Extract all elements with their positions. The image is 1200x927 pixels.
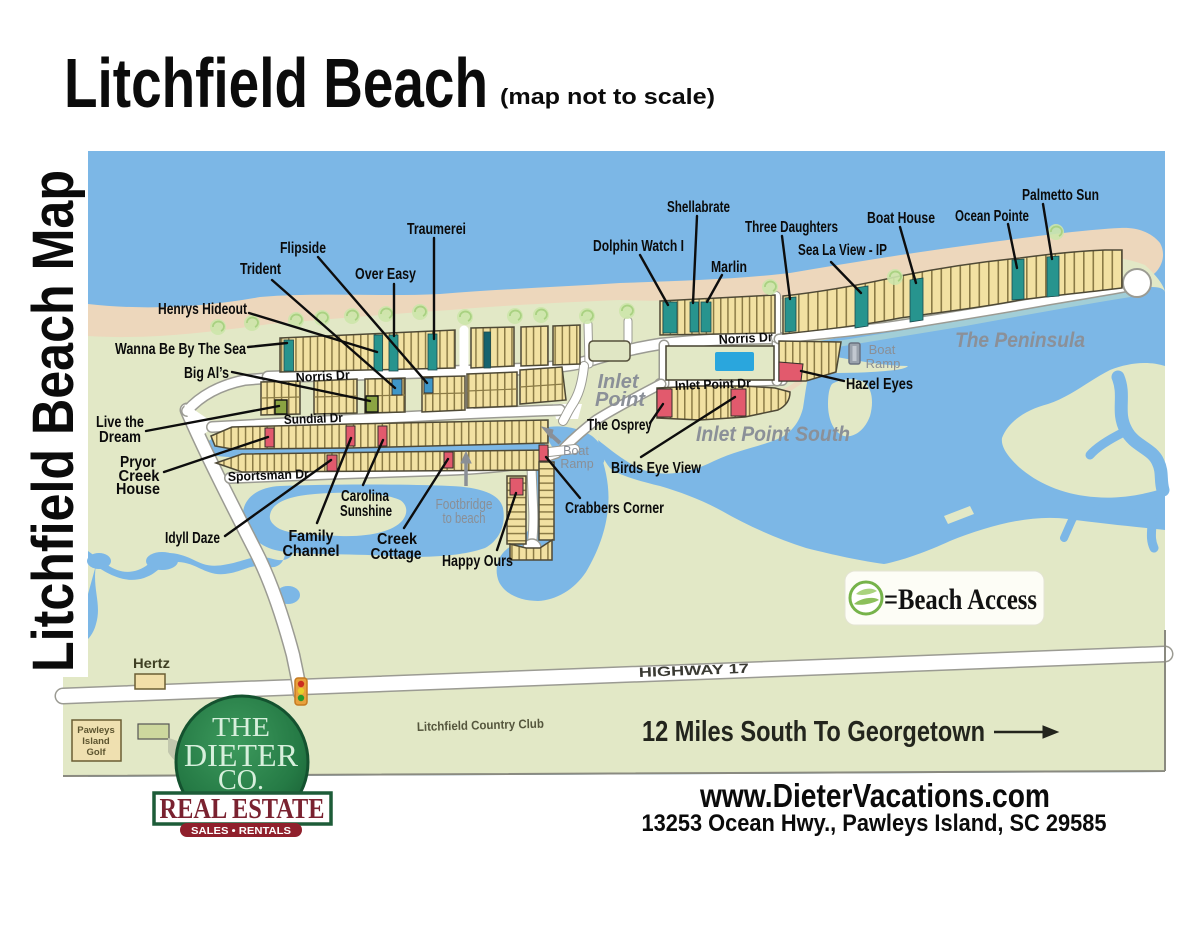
svg-text:Sundial Dr: Sundial Dr bbox=[284, 410, 343, 427]
svg-text:Trident: Trident bbox=[240, 261, 281, 278]
svg-text:13253 Ocean Hwy., Pawleys Isla: 13253 Ocean Hwy., Pawleys Island, SC 295… bbox=[642, 810, 1107, 837]
svg-text:Pawleys: Pawleys bbox=[77, 725, 115, 736]
svg-text:to beach: to beach bbox=[443, 511, 486, 527]
svg-text:Channel: Channel bbox=[283, 543, 340, 560]
svg-text:The Peninsula: The Peninsula bbox=[955, 329, 1085, 352]
svg-text:Hertz: Hertz bbox=[133, 656, 170, 671]
svg-text:Dream: Dream bbox=[99, 429, 141, 446]
svg-text:Crabbers Corner: Crabbers Corner bbox=[565, 500, 664, 517]
svg-text:Point: Point bbox=[595, 389, 646, 411]
svg-text:Boat: Boat bbox=[563, 444, 589, 458]
svg-text:=Beach Access: =Beach Access bbox=[884, 583, 1037, 616]
svg-text:Marlin: Marlin bbox=[711, 259, 747, 276]
svg-text:Cottage: Cottage bbox=[371, 546, 422, 563]
svg-text:Sea La View - IP: Sea La View - IP bbox=[798, 242, 887, 259]
svg-text:Sportsman Dr: Sportsman Dr bbox=[228, 466, 309, 484]
svg-text:Birds Eye View: Birds Eye View bbox=[611, 460, 702, 477]
svg-text:Happy Ours: Happy Ours bbox=[442, 553, 513, 570]
svg-text:SALES • RENTALS: SALES • RENTALS bbox=[191, 825, 291, 837]
svg-text:Sunshine: Sunshine bbox=[340, 503, 392, 520]
svg-text:Ocean Pointe: Ocean Pointe bbox=[955, 208, 1029, 225]
svg-text:www.DieterVacations.com: www.DieterVacations.com bbox=[699, 777, 1050, 814]
svg-text:Hazel Eyes: Hazel Eyes bbox=[846, 376, 913, 393]
svg-text:Shellabrate: Shellabrate bbox=[667, 199, 730, 216]
svg-text:Flipside: Flipside bbox=[280, 240, 326, 257]
svg-text:The Osprey: The Osprey bbox=[587, 417, 652, 434]
svg-text:Ramp: Ramp bbox=[866, 356, 901, 371]
svg-text:Litchfield Beach: Litchfield Beach bbox=[64, 44, 488, 122]
svg-text:House: House bbox=[116, 481, 160, 498]
svg-text:CO.: CO. bbox=[218, 764, 264, 796]
svg-text:Island: Island bbox=[82, 736, 110, 747]
svg-text:Inlet Point Dr: Inlet Point Dr bbox=[675, 375, 751, 393]
svg-text:REAL ESTATE: REAL ESTATE bbox=[160, 794, 325, 825]
svg-text:Dolphin Watch I: Dolphin Watch I bbox=[593, 238, 684, 255]
svg-text:Norris Dr: Norris Dr bbox=[718, 329, 773, 347]
svg-text:Big Al’s: Big Al’s bbox=[184, 365, 229, 382]
svg-text:Boat House: Boat House bbox=[867, 210, 935, 227]
svg-text:Henrys Hideout: Henrys Hideout bbox=[158, 301, 247, 318]
svg-text:(map not to scale): (map not to scale) bbox=[500, 84, 715, 109]
svg-text:Over Easy: Over Easy bbox=[355, 266, 416, 283]
svg-text:12 Miles South To Georgetown: 12 Miles South To Georgetown bbox=[642, 716, 985, 748]
svg-text:Traumerei: Traumerei bbox=[407, 221, 466, 238]
svg-text:Norris Dr: Norris Dr bbox=[295, 367, 350, 385]
svg-text:Palmetto Sun: Palmetto Sun bbox=[1022, 187, 1099, 204]
svg-text:Golf: Golf bbox=[87, 747, 107, 758]
svg-text:Inlet Point South: Inlet Point South bbox=[696, 423, 850, 446]
svg-text:Litchfield Beach Map: Litchfield Beach Map bbox=[21, 170, 86, 672]
svg-text:Boat: Boat bbox=[869, 342, 896, 357]
svg-text:Three Daughters: Three Daughters bbox=[745, 219, 838, 236]
svg-text:Wanna Be By The Sea: Wanna Be By The Sea bbox=[115, 341, 246, 358]
svg-text:Ramp: Ramp bbox=[560, 457, 593, 471]
svg-text:Idyll Daze: Idyll Daze bbox=[165, 530, 220, 547]
